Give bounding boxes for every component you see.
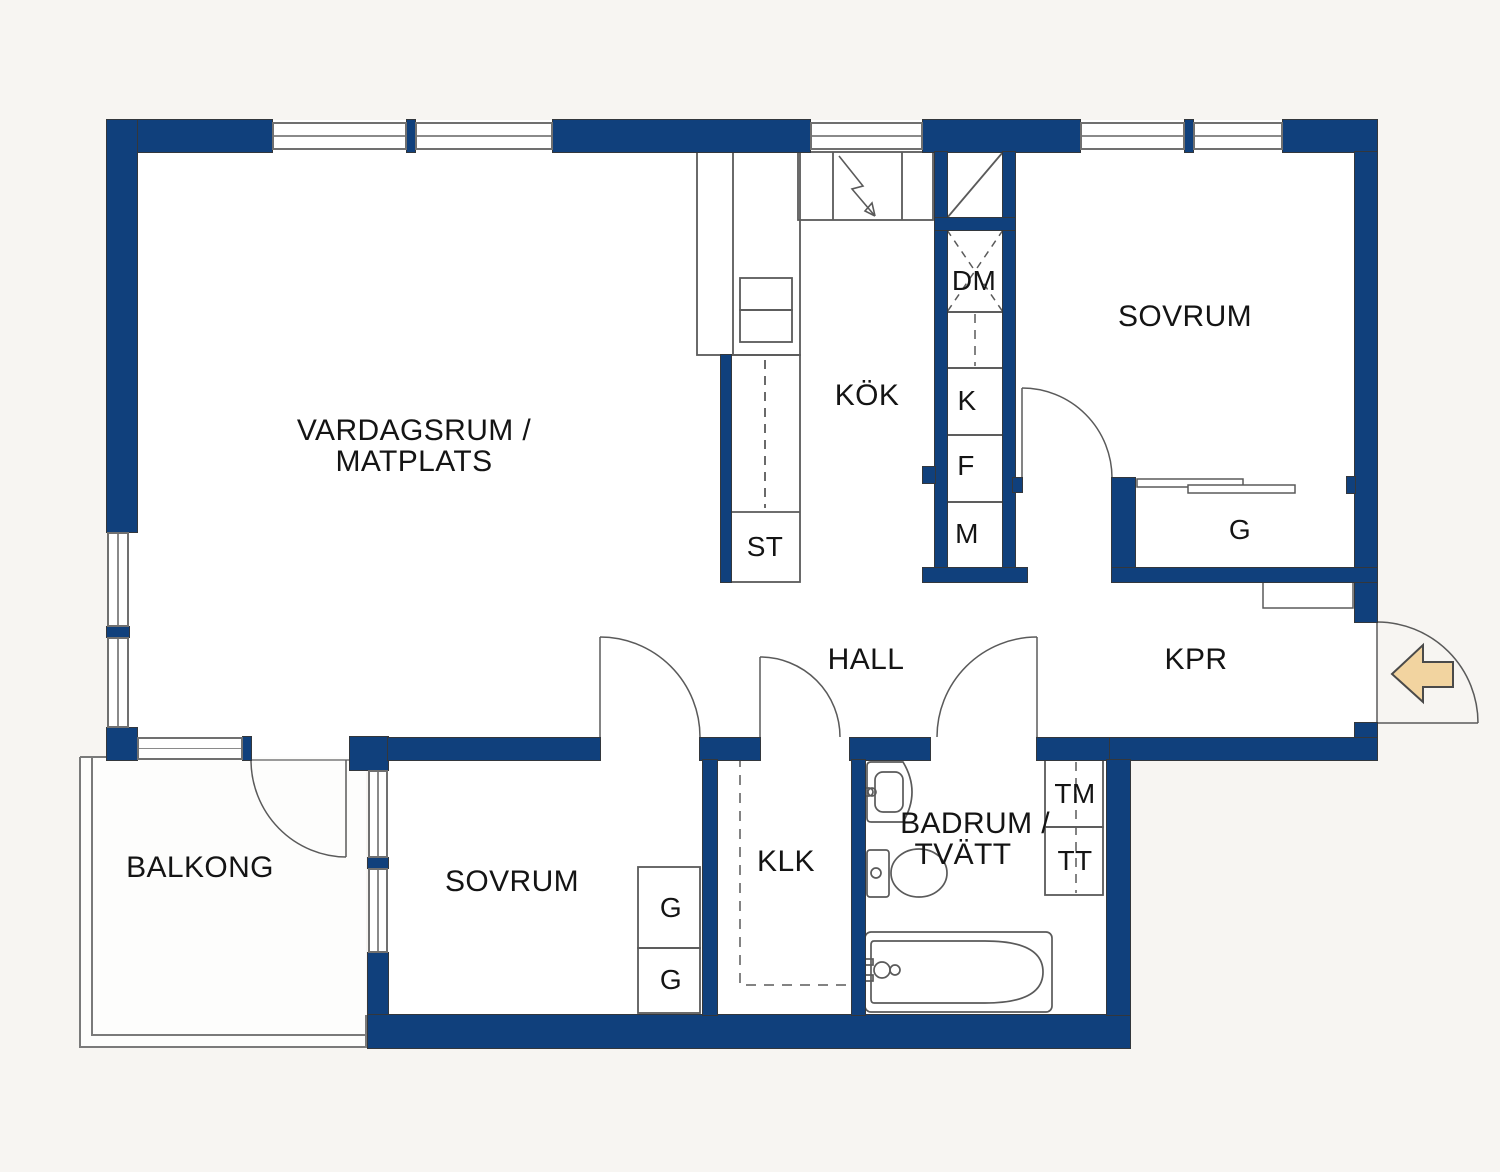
wall [553, 120, 810, 152]
window [1193, 122, 1283, 150]
wall [350, 737, 388, 770]
wall [700, 738, 760, 760]
fixture-label-wardrobe-1: G [660, 892, 682, 924]
fixture-label-fridge: K [957, 385, 976, 417]
wall [703, 760, 717, 1015]
wall [1107, 760, 1130, 1015]
plan-linework [0, 0, 1500, 1172]
wall [721, 355, 731, 582]
room-label-kpr: KPR [1165, 643, 1228, 677]
room-label-balcony: BALKONG [126, 851, 274, 885]
window [368, 770, 388, 858]
fixture-label-freezer: F [957, 450, 975, 482]
door-balcony [251, 760, 346, 857]
room-label-bathroom-2: TVÄTT [915, 838, 1012, 872]
wall [368, 1015, 1130, 1048]
window-mullion [407, 120, 415, 152]
room-label-hall: HALL [828, 643, 905, 677]
wall [1110, 738, 1377, 760]
fixture-label-wardrobe-2: G [660, 964, 682, 996]
wall [243, 737, 251, 760]
window [272, 122, 407, 150]
hat-shelf [1263, 582, 1353, 608]
fixture-label-dishwasher: DM [952, 265, 996, 297]
wall [852, 760, 865, 1015]
kitchen-counter-top [798, 152, 933, 220]
window-mullion [1185, 120, 1193, 152]
window [107, 532, 129, 627]
wall [850, 738, 930, 760]
window-mullion [368, 858, 388, 868]
kitchen-counter-left [697, 152, 800, 355]
window [368, 868, 388, 953]
fixture-label-micro: M [955, 518, 979, 550]
balcony-railing [80, 757, 366, 1047]
freezer-box [947, 435, 1003, 502]
room-label-bathroom-1: BADRUM / [900, 807, 1050, 841]
wall [107, 120, 137, 532]
sliding-wardrobe-doors [1137, 479, 1295, 493]
wall [1347, 477, 1355, 493]
room-label-klk: KLK [757, 845, 815, 879]
wall [1037, 738, 1112, 760]
window [137, 737, 243, 760]
wall [935, 152, 947, 582]
wall [107, 728, 137, 760]
entry-arrow-icon [1392, 645, 1453, 702]
wall [1355, 152, 1377, 622]
vent-shaft-icon [947, 152, 1003, 218]
door-upper-bedroom [1022, 388, 1112, 478]
fixture-label-wardrobe-upper: G [1229, 514, 1251, 546]
door-bathroom [937, 637, 1037, 737]
window-mullion [107, 627, 129, 637]
fixture-label-tumble-dryer: TT [1057, 845, 1092, 877]
room-label-bedroom-upper: SOVRUM [1118, 300, 1252, 334]
window [1080, 122, 1185, 150]
wall [1112, 568, 1377, 582]
wall [1013, 478, 1022, 492]
fixture-label-st: ST [747, 531, 784, 563]
floor-plan: VARDAGSRUM / MATPLATS KÖK SOVRUM HALL KP… [0, 0, 1500, 1172]
wall [935, 218, 1015, 230]
room-label-living-1: VARDAGSRUM / [297, 414, 531, 448]
wall [923, 568, 1027, 582]
fixture-label-washing-machine: TM [1054, 778, 1095, 810]
stove-icon [839, 156, 875, 216]
wall [923, 120, 1080, 152]
wall [368, 953, 388, 1015]
room-label-bedroom-lower: SOVRUM [445, 865, 579, 899]
kitchen-sink [740, 278, 792, 310]
wall [1283, 120, 1377, 152]
wall [1003, 152, 1015, 568]
window [810, 122, 923, 150]
room-label-living-2: MATPLATS [335, 445, 492, 479]
wall [1112, 478, 1135, 582]
wall [388, 738, 600, 760]
door-lower-bedroom [600, 637, 700, 737]
window [107, 637, 129, 728]
wall [923, 467, 935, 483]
window [415, 122, 553, 150]
bathtub [864, 932, 1052, 1012]
room-label-kitchen: KÖK [835, 379, 900, 413]
